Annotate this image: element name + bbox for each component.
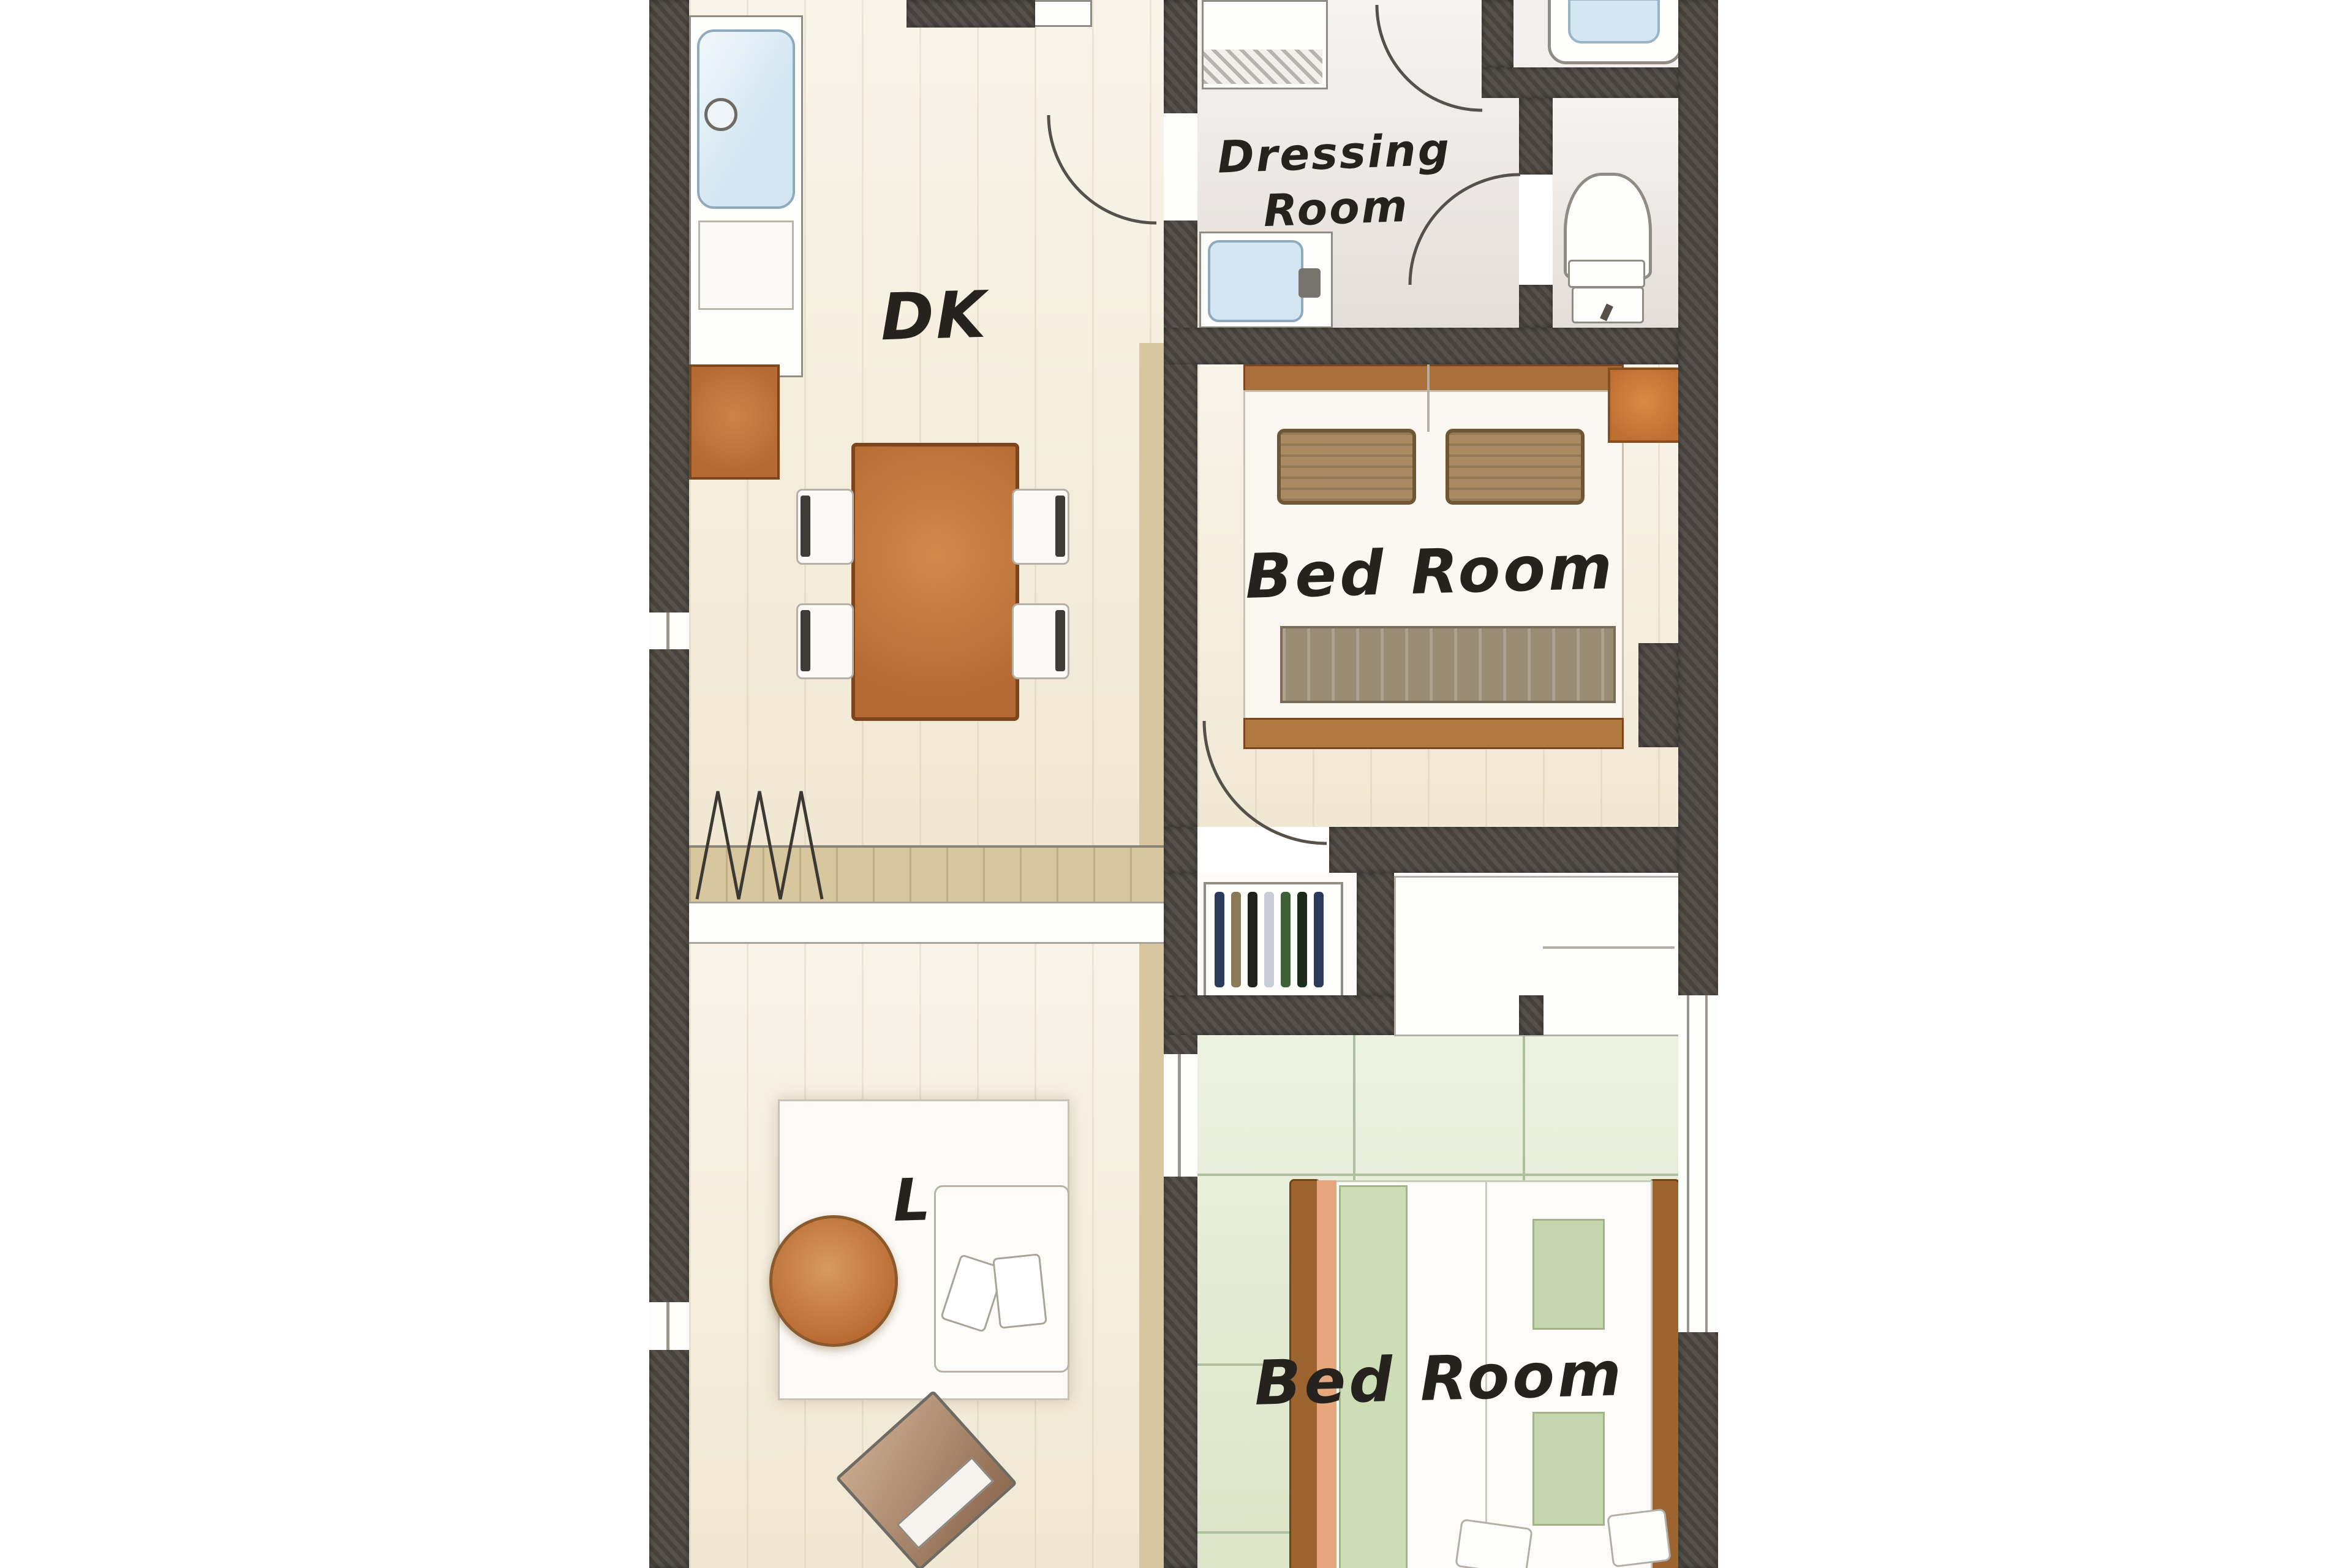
chair-back-icon (1055, 610, 1065, 671)
bedside-cabinet (1608, 367, 1681, 443)
kitchen-cabinet (689, 364, 780, 480)
dressing-line2: Room (1262, 180, 1410, 236)
bedroom1-label: Bed Room (1218, 530, 1643, 613)
sliding-door-track (689, 902, 1164, 944)
shelf-item-icon (1281, 892, 1291, 987)
vanity-faucet-icon (1298, 268, 1321, 298)
wall-dk-top-stub (907, 0, 1035, 28)
bedroom2-label: Bed Room (1224, 1337, 1655, 1420)
sliding-door-line (1178, 1054, 1181, 1177)
faucet-icon (704, 98, 737, 131)
window-bedroom2-line (1687, 995, 1689, 1332)
closet-shelf-line (1543, 946, 1675, 949)
wall-bedroom1-bottom-right (1329, 827, 1678, 873)
pillar-bedroom1 (1638, 643, 1678, 747)
washer-hatch (1204, 50, 1322, 84)
shelf-item-icon (1248, 892, 1257, 987)
bed1-footboard (1243, 718, 1624, 749)
chair-back-icon (801, 610, 810, 671)
living-label: L (872, 1166, 954, 1235)
toilet-tank (1572, 287, 1644, 323)
dressing-room-label: Dressing Room (1186, 121, 1484, 241)
window-bedroom2-line (1705, 995, 1708, 1332)
bed1-blanket (1280, 626, 1616, 703)
dk-living-partition (689, 845, 1164, 906)
bed-pillow (1607, 1508, 1672, 1567)
dining-table (851, 443, 1019, 721)
toilet-seat (1568, 260, 1645, 288)
window-left-lower-line (666, 1302, 669, 1350)
dining-chair (796, 603, 854, 679)
bed3-cushion (1532, 1412, 1605, 1526)
chair-back-icon (1055, 496, 1065, 557)
shelf-item-icon (1231, 892, 1241, 987)
bathtub-water (1568, 0, 1660, 43)
bathtub (1548, 0, 1683, 64)
wall-toilet-lower (1519, 285, 1553, 328)
washing-machine (1202, 0, 1328, 89)
wall-bedroom1-bottom-left (1164, 827, 1197, 873)
bed1-center-line (1427, 364, 1430, 432)
tatami-line (1197, 1174, 1678, 1176)
closet-shelf (1204, 882, 1343, 1000)
wall-face-strip (1139, 343, 1164, 1568)
stub-wall-small (1519, 995, 1543, 1035)
shelf-item-icon (1215, 892, 1224, 987)
window-left-line (666, 612, 669, 649)
sofa (934, 1185, 1069, 1373)
kitchen-appliance (698, 221, 794, 310)
closet-stub-wall (1357, 873, 1394, 995)
sofa-cushion (992, 1253, 1047, 1329)
tank-lever-icon (1600, 304, 1613, 322)
bed1-pillow (1277, 429, 1416, 505)
shelf-item-icon (1297, 892, 1307, 987)
dressing-line1: Dressing (1216, 123, 1452, 183)
wall-closet-bottom (1164, 995, 1394, 1035)
vanity-sink (1208, 240, 1303, 322)
bed1-pillow (1445, 429, 1585, 505)
dk-label: DK (838, 276, 1030, 356)
divider-wall-mid (1164, 355, 1197, 827)
wall-bedroom1-top (1164, 328, 1678, 364)
dining-chair (1012, 489, 1069, 565)
bed3-cushion (1532, 1219, 1605, 1330)
dining-chair (796, 489, 854, 565)
wall-bath-bottom (1482, 67, 1678, 98)
shelf-item-icon (1314, 892, 1324, 987)
dining-chair (1012, 603, 1069, 679)
wall-bath-stub (1482, 0, 1513, 67)
bed1-headboard (1243, 364, 1624, 394)
chair-back-icon (801, 496, 810, 557)
wall-toilet-upper (1519, 98, 1553, 175)
divider-wall-bottom (1164, 873, 1197, 1568)
shelf-item-icon (1264, 892, 1274, 987)
outer-wall-right (1678, 0, 1718, 1568)
window-bedroom2 (1678, 995, 1718, 1332)
floor-plan: DK Dressing Room Bed Room Bed Room L (0, 0, 2352, 1568)
